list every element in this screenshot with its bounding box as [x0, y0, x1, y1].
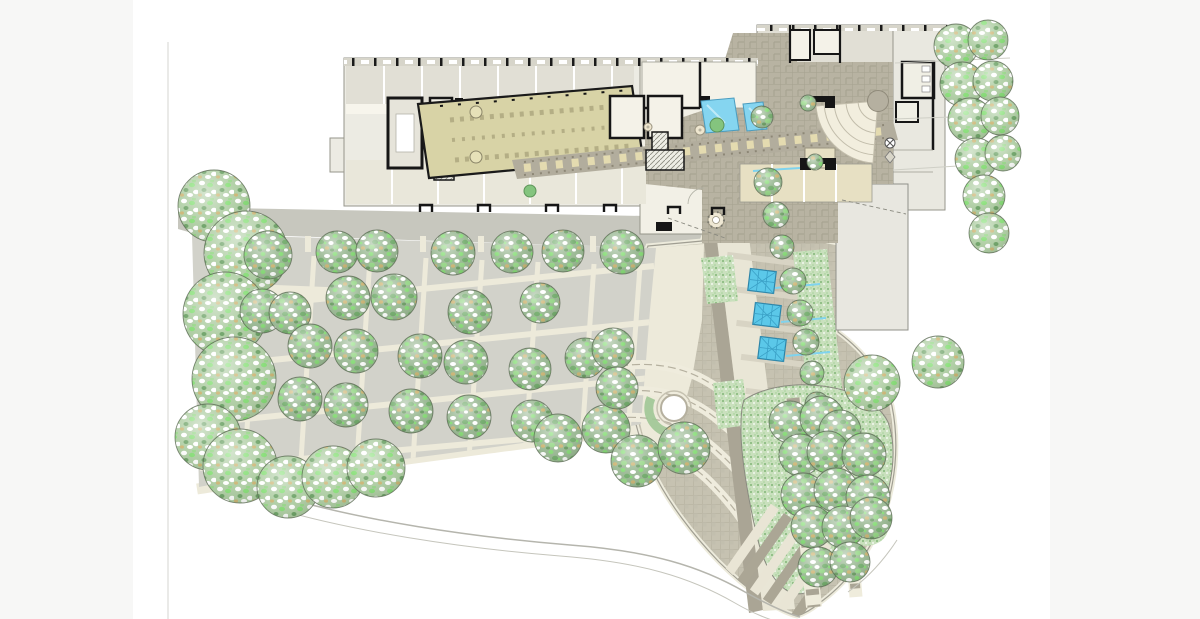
tree — [800, 361, 824, 385]
tree — [800, 95, 816, 111]
tree — [444, 340, 488, 384]
tree — [830, 542, 870, 582]
tree — [754, 168, 782, 196]
tree — [596, 367, 638, 409]
tree — [770, 235, 794, 259]
tree — [520, 283, 560, 323]
fountain-center — [647, 126, 650, 129]
tree — [973, 61, 1013, 101]
tree — [751, 106, 773, 128]
square-pool — [758, 336, 786, 361]
tree — [324, 383, 368, 427]
walk-connector — [420, 236, 426, 252]
tree — [356, 230, 398, 272]
walk-connector — [590, 236, 596, 252]
square-pool — [748, 268, 776, 293]
tree — [448, 290, 492, 334]
tree — [787, 300, 813, 326]
tree — [968, 20, 1008, 60]
tree — [371, 274, 417, 320]
tree — [278, 377, 322, 421]
tree — [431, 231, 475, 275]
tree — [611, 435, 663, 487]
tree — [542, 230, 584, 272]
tree — [326, 276, 370, 320]
tree — [658, 422, 710, 474]
tree — [534, 414, 582, 462]
tree — [850, 497, 892, 539]
stair-block — [646, 150, 684, 170]
tree — [398, 334, 442, 378]
tree — [491, 231, 533, 273]
tree — [793, 329, 819, 355]
south-east-mass — [836, 184, 908, 330]
shrub — [524, 185, 536, 197]
shrub — [710, 118, 724, 132]
tree — [288, 324, 332, 368]
tree — [509, 348, 551, 390]
tree — [316, 231, 358, 273]
site-plan-drawing — [0, 0, 1200, 619]
tree — [600, 230, 644, 274]
tree — [347, 439, 405, 497]
tree — [244, 231, 292, 279]
site-plan-canvas — [0, 0, 1200, 619]
tree — [780, 268, 806, 294]
tree — [912, 336, 964, 388]
tree — [963, 175, 1005, 217]
square-pool — [753, 302, 781, 327]
tree — [447, 395, 491, 439]
tree — [592, 328, 634, 370]
tree — [807, 154, 823, 170]
tree — [334, 329, 378, 373]
tree — [763, 202, 789, 228]
tree — [844, 355, 900, 411]
left-margin — [0, 0, 133, 619]
tree — [389, 389, 433, 433]
tree — [985, 135, 1021, 171]
tree — [981, 97, 1019, 135]
right-margin — [1050, 0, 1200, 619]
fountain-center — [699, 129, 702, 132]
tree — [969, 213, 1009, 253]
tree — [842, 433, 886, 477]
walk-connector — [305, 236, 311, 252]
walk-connector — [478, 236, 484, 252]
round-planter — [868, 91, 889, 112]
